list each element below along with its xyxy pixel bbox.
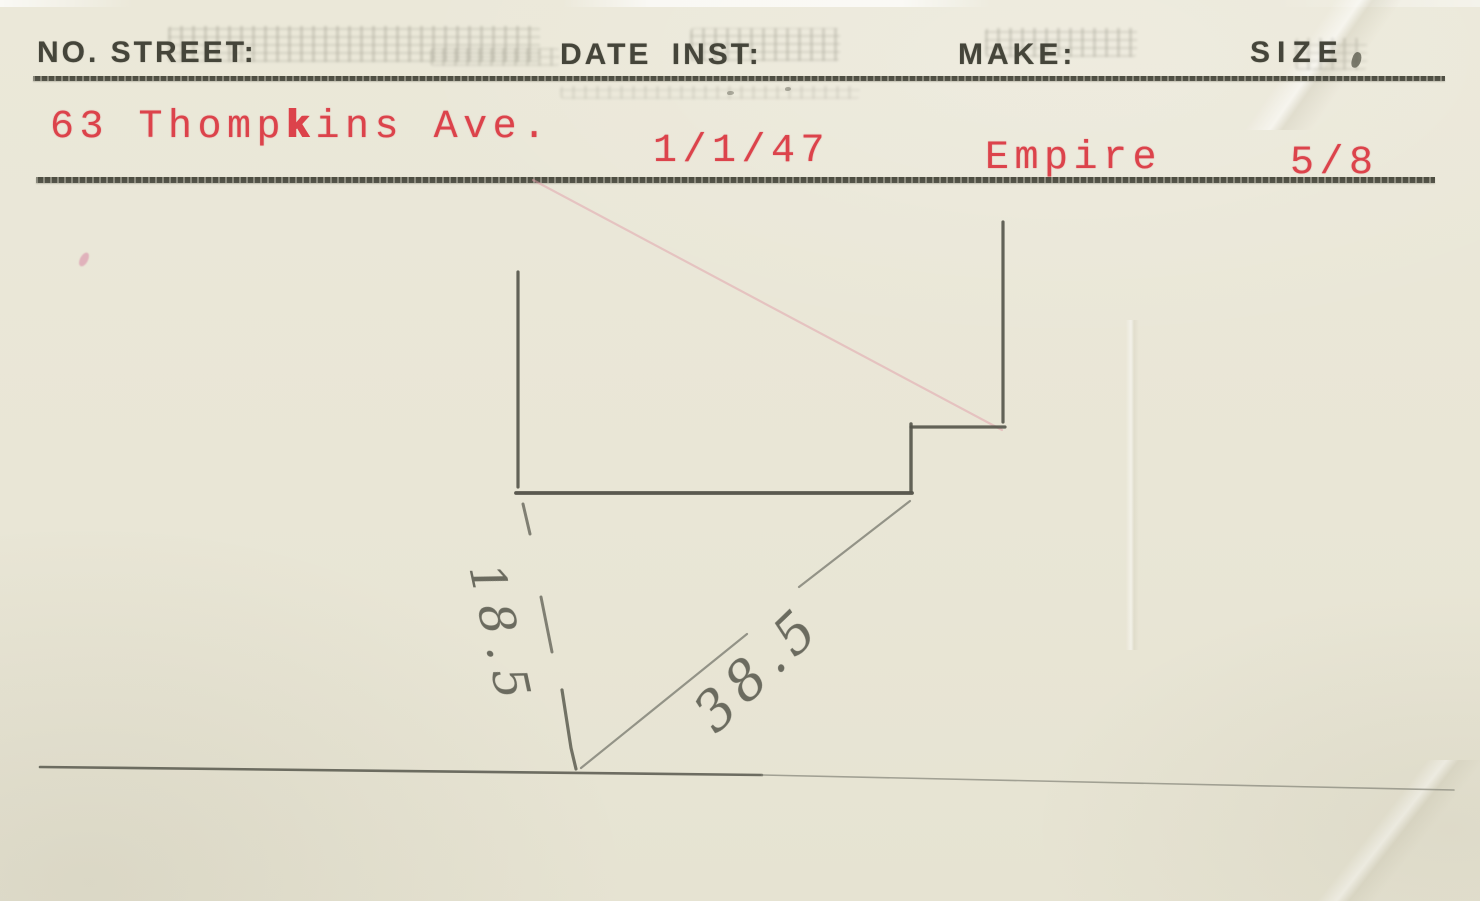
ground-line-right — [762, 775, 1454, 790]
sketch-diagonal-upper — [799, 501, 910, 587]
sketch-depth-dash-2 — [541, 597, 552, 652]
ground-line-left — [40, 767, 762, 775]
sketch-depth-dash-3 — [562, 690, 576, 769]
pencil-sketch — [0, 0, 1480, 901]
record-card: NO. STREET: DATE INST: MAKE: SIZE 63 Tho… — [0, 0, 1480, 901]
sketch-depth-dash-1 — [523, 504, 530, 534]
pink-trace-line — [533, 180, 1002, 430]
